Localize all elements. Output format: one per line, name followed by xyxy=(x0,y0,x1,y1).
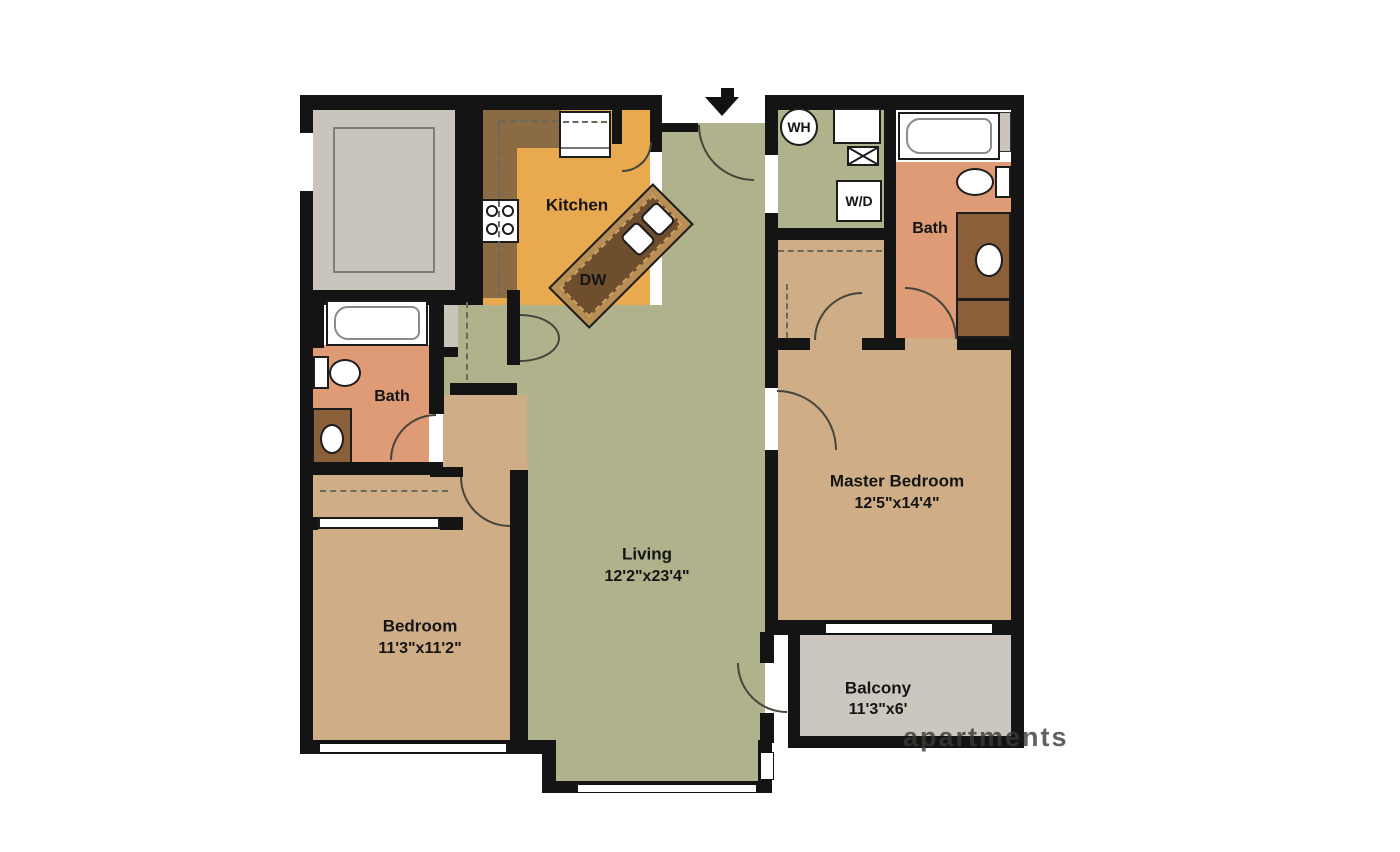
closet-dash xyxy=(786,284,788,338)
wall xyxy=(765,450,778,632)
wall xyxy=(300,95,313,754)
wall xyxy=(662,123,698,132)
wall xyxy=(862,338,896,350)
window xyxy=(300,133,313,191)
wall xyxy=(765,228,887,240)
washer-dryer-label: W/D xyxy=(845,194,872,208)
refrigerator-icon xyxy=(559,111,611,158)
room-living-main xyxy=(528,470,765,740)
master-bedroom-label: Master Bedroom xyxy=(830,473,964,490)
balcony-dimensions: 11'3"x6' xyxy=(849,702,908,718)
wall xyxy=(450,383,517,395)
toilet-bowl-icon xyxy=(956,168,994,196)
wall xyxy=(440,517,463,530)
closet-dash xyxy=(320,490,448,492)
wall xyxy=(957,338,1011,350)
wall xyxy=(884,110,896,338)
toilet-bowl-icon xyxy=(329,359,361,387)
wall xyxy=(507,290,520,365)
stove-icon xyxy=(481,199,519,243)
bedroom-label: Bedroom xyxy=(383,618,458,635)
wall xyxy=(300,462,443,475)
wall xyxy=(760,713,774,743)
watermark: apartments xyxy=(903,722,1069,753)
wall xyxy=(788,635,800,736)
wall xyxy=(312,298,324,348)
living-dimensions: 12'2"x23'4" xyxy=(604,569,689,585)
master-bedroom-dimensions: 12'5"x14'4" xyxy=(854,496,939,512)
closet-dash xyxy=(466,302,468,380)
closet-dash xyxy=(778,250,882,252)
bedroom-vestibule xyxy=(443,395,527,467)
room-living-bay xyxy=(556,740,758,783)
bathtub-basin xyxy=(334,306,420,340)
storage-inner-outline xyxy=(333,127,435,273)
bath-master-label: Bath xyxy=(912,221,948,237)
window xyxy=(760,752,774,780)
toilet-tank-icon xyxy=(995,166,1011,198)
window xyxy=(578,784,756,793)
closet-door xyxy=(318,517,440,529)
floor-plan: Kitchen DW WH W/D Bath Bath Living 12'2"… xyxy=(0,0,1400,852)
bedroom-dimensions: 11'3"x11'2" xyxy=(378,641,461,657)
toilet-tank-icon xyxy=(313,356,329,389)
counter-dash xyxy=(500,120,558,122)
wall xyxy=(510,470,528,740)
balcony-label: Balcony xyxy=(845,680,911,697)
wall xyxy=(896,338,905,350)
wall xyxy=(612,110,622,144)
bath-main-label: Bath xyxy=(374,389,410,405)
water-heater-label: WH xyxy=(787,120,810,134)
wall xyxy=(300,517,318,530)
wall xyxy=(455,95,483,305)
window xyxy=(320,743,506,753)
dishwasher-label: DW xyxy=(580,273,607,289)
wall xyxy=(765,338,810,350)
entry-arrow-icon xyxy=(705,97,739,116)
window xyxy=(826,623,992,634)
bathtub-basin xyxy=(906,118,992,154)
wall xyxy=(1011,95,1024,748)
wall xyxy=(760,632,774,663)
sink-icon xyxy=(975,243,1003,277)
laundry-counter-icon xyxy=(833,108,881,144)
living-label: Living xyxy=(622,546,672,563)
wall xyxy=(765,108,778,155)
counter-dash xyxy=(498,120,500,298)
master-bath-vanity-divider xyxy=(956,298,1011,301)
sink-icon xyxy=(320,424,344,454)
wall xyxy=(430,467,463,477)
kitchen-label: Kitchen xyxy=(546,197,608,214)
wall xyxy=(440,347,458,357)
laundry-sink-icon xyxy=(847,146,879,166)
